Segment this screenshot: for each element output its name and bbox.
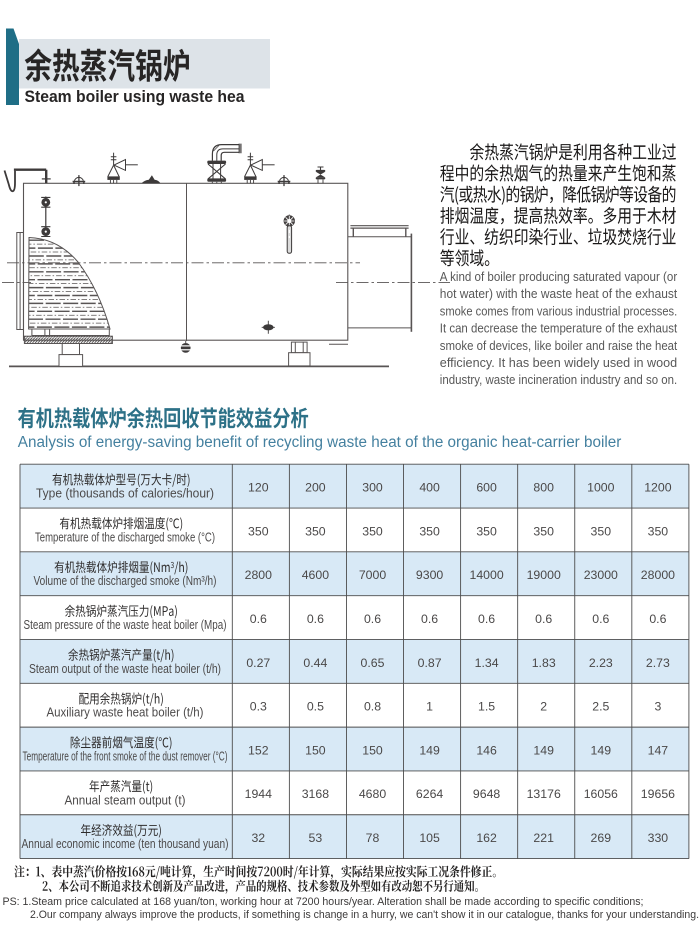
svg-text:1: 1 — [426, 700, 433, 714]
svg-text:Type (thousands of calories/ho: Type (thousands of calories/hour) — [36, 486, 214, 501]
svg-text:16056: 16056 — [584, 787, 618, 801]
svg-text:350: 350 — [533, 524, 554, 538]
svg-text:0.6: 0.6 — [364, 612, 381, 626]
svg-text:Volume of the discharged smoke: Volume of the discharged smoke (Nm³/h) — [34, 573, 217, 588]
svg-text:Temperature of the discharged: Temperature of the discharged smoke (°C) — [35, 529, 215, 544]
svg-text:78: 78 — [366, 831, 380, 845]
svg-text:19000: 19000 — [527, 568, 561, 582]
svg-text:0.6: 0.6 — [592, 612, 609, 626]
svg-text:13176: 13176 — [527, 787, 561, 801]
svg-text:0.5: 0.5 — [307, 700, 324, 714]
svg-text:2.73: 2.73 — [646, 656, 670, 670]
svg-text:Annual economic income (ten th: Annual economic income (ten thousand yua… — [22, 836, 229, 851]
svg-text:149: 149 — [419, 743, 440, 757]
svg-text:0.3: 0.3 — [250, 700, 267, 714]
svg-text:1000: 1000 — [587, 481, 615, 495]
svg-text:120: 120 — [248, 481, 269, 495]
svg-text:Steam output of the waste heat: Steam output of the waste heat boiler (t… — [29, 661, 221, 676]
svg-text:400: 400 — [419, 481, 440, 495]
svg-text:0.6: 0.6 — [535, 612, 552, 626]
svg-text:2800: 2800 — [245, 568, 273, 582]
svg-text:hot water) with the waste heat: hot water) with the waste heat of the ex… — [440, 287, 678, 301]
svg-text:6264: 6264 — [416, 787, 444, 801]
svg-text:2: 2 — [540, 700, 547, 714]
svg-text:200: 200 — [305, 481, 326, 495]
svg-text:28000: 28000 — [641, 568, 675, 582]
svg-text:0.6: 0.6 — [421, 612, 438, 626]
svg-text:19656: 19656 — [641, 787, 675, 801]
svg-text:1.83: 1.83 — [532, 656, 556, 670]
svg-text:147: 147 — [648, 743, 669, 757]
svg-text:0.6: 0.6 — [649, 612, 666, 626]
svg-text:53: 53 — [309, 831, 323, 845]
svg-text:330: 330 — [648, 831, 669, 845]
svg-text:14000: 14000 — [469, 568, 503, 582]
svg-text:350: 350 — [305, 524, 326, 538]
svg-text:2.Our company always improve t: 2.Our company always improve the product… — [30, 909, 699, 921]
svg-text:300: 300 — [362, 481, 383, 495]
svg-text:1944: 1944 — [245, 787, 273, 801]
svg-text:162: 162 — [476, 831, 497, 845]
svg-text:150: 150 — [305, 743, 326, 757]
svg-text:efficiency. It has been widely: efficiency. It has been widely used in w… — [440, 356, 677, 370]
svg-text:350: 350 — [648, 524, 669, 538]
svg-text:150: 150 — [362, 743, 383, 757]
svg-text:23000: 23000 — [584, 568, 618, 582]
svg-text:350: 350 — [591, 524, 612, 538]
svg-text:800: 800 — [533, 481, 554, 495]
svg-text:industry, waste incineration i: industry, waste incineration industry an… — [440, 373, 677, 387]
svg-text:152: 152 — [248, 743, 269, 757]
svg-text:350: 350 — [419, 524, 440, 538]
svg-text:0.8: 0.8 — [364, 700, 381, 714]
svg-text:0.87: 0.87 — [418, 656, 442, 670]
svg-text:1.34: 1.34 — [475, 656, 499, 670]
svg-text:4600: 4600 — [302, 568, 330, 582]
svg-text:Temperature of the front smoke: Temperature of the front smoke of the du… — [23, 749, 228, 764]
svg-text:9648: 9648 — [473, 787, 501, 801]
svg-text:Steam boiler using waste hea: Steam boiler using waste hea — [25, 87, 246, 106]
svg-text:Steam pressure of the waste he: Steam pressure of the waste heat boiler … — [24, 617, 227, 632]
svg-text:269: 269 — [591, 831, 612, 845]
svg-text:Annual steam output (t): Annual steam output (t) — [65, 792, 186, 807]
svg-text:0.6: 0.6 — [250, 612, 267, 626]
svg-text:146: 146 — [476, 743, 497, 757]
svg-text:3168: 3168 — [302, 787, 330, 801]
svg-text:It can decrease the temperatur: It can decrease the temperature of the e… — [440, 322, 678, 336]
svg-text:350: 350 — [362, 524, 383, 538]
svg-text:smoke comes from various indus: smoke comes from various industrial proc… — [440, 304, 677, 318]
svg-text:1.5: 1.5 — [478, 700, 495, 714]
svg-text:0.6: 0.6 — [307, 612, 324, 626]
svg-text:350: 350 — [248, 524, 269, 538]
svg-text:105: 105 — [419, 831, 440, 845]
svg-text:0.65: 0.65 — [361, 656, 385, 670]
svg-text:1200: 1200 — [644, 481, 672, 495]
svg-text:2.23: 2.23 — [589, 656, 613, 670]
svg-text:Analysis of energy-saving bene: Analysis of energy-saving benefit of rec… — [18, 434, 622, 451]
svg-text:A kind of boiler producing sat: A kind of boiler producing saturated vap… — [440, 270, 677, 284]
svg-text:2.5: 2.5 — [592, 700, 609, 714]
svg-text:4680: 4680 — [359, 787, 387, 801]
svg-text:149: 149 — [533, 743, 554, 757]
svg-text:Auxiliary waste heat boiler (t: Auxiliary waste heat boiler (t/h) — [47, 705, 204, 720]
svg-text:7000: 7000 — [359, 568, 387, 582]
svg-text:smoke of devices, like boiler: smoke of devices, like boiler and raise … — [440, 339, 678, 353]
svg-text:0.6: 0.6 — [478, 612, 495, 626]
svg-text:32: 32 — [251, 831, 265, 845]
svg-text:3: 3 — [654, 700, 661, 714]
svg-text:221: 221 — [533, 831, 554, 845]
svg-text:PS: 1.Steam price calculated a: PS: 1.Steam price calculated at 168 yuan… — [3, 896, 644, 908]
svg-text:0.27: 0.27 — [246, 656, 270, 670]
svg-text:0.44: 0.44 — [303, 656, 327, 670]
svg-text:350: 350 — [476, 524, 497, 538]
svg-text:600: 600 — [476, 481, 497, 495]
svg-text:9300: 9300 — [416, 568, 444, 582]
svg-text:149: 149 — [591, 743, 612, 757]
